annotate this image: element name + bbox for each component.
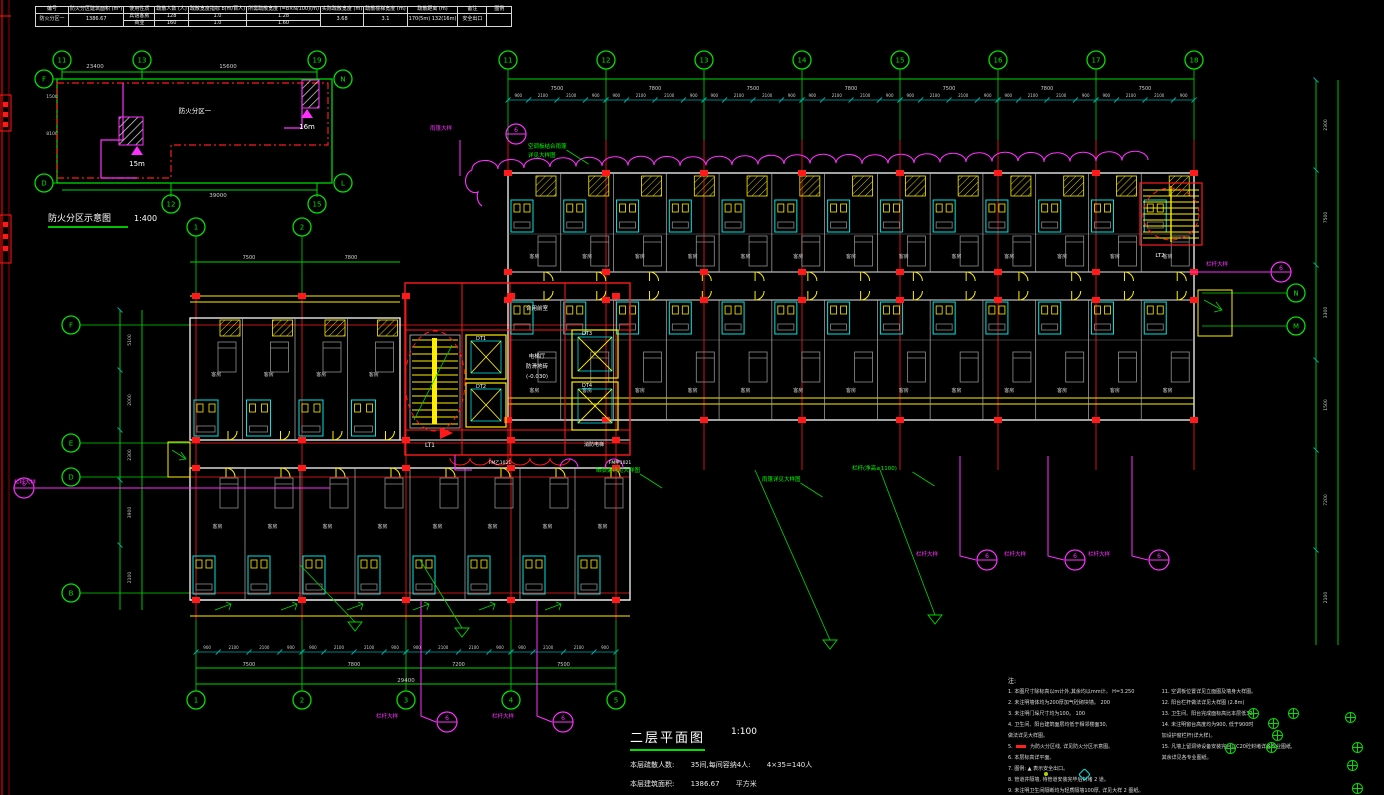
leader-line — [880, 470, 935, 615]
column-marker — [602, 297, 610, 303]
room-label: 客房 — [793, 253, 803, 260]
dim-text: 900 — [601, 645, 609, 650]
fixture — [471, 560, 477, 568]
door-arc — [391, 468, 400, 477]
dim-text: 7500 — [1139, 86, 1152, 92]
fixture — [936, 222, 952, 228]
slope-triangle — [455, 628, 469, 637]
dim-text: 2100 — [538, 93, 549, 98]
dim-text: 900 — [287, 645, 295, 650]
grid-bubble-label: 13 — [700, 57, 709, 65]
column-marker — [298, 465, 306, 471]
grid-bubble: 12 — [162, 195, 180, 213]
grid-bubble-label: F — [69, 322, 73, 330]
plan-scale: 1:100 — [731, 727, 757, 737]
laundry-hatch — [325, 320, 345, 336]
column-marker — [612, 293, 620, 299]
column-marker — [504, 417, 512, 423]
dim-text: 900 — [391, 645, 399, 650]
fixture — [831, 204, 837, 212]
bed — [696, 352, 714, 382]
column-marker — [504, 170, 512, 176]
dim-text: 5100 — [127, 334, 133, 346]
fixture — [302, 404, 308, 412]
dim-text: 7800 — [345, 255, 358, 261]
room-label: 客房 — [952, 253, 962, 260]
door-arc — [446, 468, 455, 477]
room-label: 客房 — [846, 253, 856, 260]
frame-mark — [3, 112, 8, 117]
grid-bubble: 1 — [187, 691, 205, 709]
room-label: 客房 — [487, 523, 497, 530]
column-marker — [602, 170, 610, 176]
room-label: 客房 — [597, 523, 607, 530]
fixture — [316, 560, 322, 568]
dim-text: 900 — [592, 93, 600, 98]
callout-label: 栏杆大样 — [492, 712, 515, 720]
evac-value: 4×35=140人 — [767, 761, 812, 769]
fixture — [620, 222, 636, 228]
fixture — [725, 324, 741, 330]
fixture — [1157, 306, 1163, 314]
fixture — [206, 560, 212, 568]
fixture — [196, 584, 212, 590]
room-label: 客房 — [1057, 387, 1067, 394]
laundry-hatch — [1169, 176, 1189, 196]
note-item: 做法详见大样图。 — [1008, 731, 1156, 742]
room-label: 客房 — [316, 371, 326, 378]
room-label: 客房 — [264, 371, 274, 378]
core-stairs-lifts: LT1DT1DT2DT3DT4合用前室电梯厅防滑地砖(-0.030)消防电梯FM… — [405, 183, 1202, 470]
door-arc — [544, 272, 553, 281]
detail-callout: 6栏杆大样 — [1088, 456, 1169, 570]
fixture — [989, 222, 1005, 228]
annotation-leader — [913, 472, 935, 486]
grid-bubble: B — [62, 584, 80, 602]
annotations: 空调板结合雨篷详见大样图晒衣架详见大样图雨篷详见大样图栏杆(净高≥1100) — [300, 142, 942, 649]
fixture — [883, 204, 889, 212]
laundry-hatch — [1011, 176, 1031, 196]
grid-bubble: 5 — [607, 691, 625, 709]
door-arc — [913, 272, 922, 281]
dim-text: 7500 — [551, 86, 564, 92]
fixture — [524, 204, 530, 212]
room-label: 客房 — [1163, 387, 1173, 394]
fixture — [672, 222, 688, 228]
bed — [1013, 352, 1031, 382]
main-floor-plan: 客房客房客房客房客房客房客房客房客房客房客房客房客房客房客房客房客房客房客房客房… — [168, 170, 1232, 616]
fixture — [883, 306, 889, 314]
room-label: 防滑地砖 — [526, 362, 549, 370]
column-marker — [896, 297, 904, 303]
room-label: 客房 — [582, 253, 592, 260]
bed — [1013, 236, 1031, 266]
frame-mark — [3, 102, 8, 107]
table-cell: 1.0 — [188, 13, 246, 20]
fixture — [778, 306, 784, 314]
grid-bubble: E — [62, 434, 80, 452]
fixture — [936, 306, 942, 314]
column-marker — [612, 597, 620, 603]
legend-symbol-dot — [1044, 772, 1048, 776]
column-marker — [298, 293, 306, 299]
door-arc — [386, 431, 395, 440]
laundry-hatch — [747, 176, 767, 196]
bed — [960, 236, 978, 266]
callout-number: 6 — [445, 715, 449, 722]
key-plan-scale: 1:400 — [134, 214, 157, 223]
room-label: 客房 — [1004, 253, 1014, 260]
laundry-hatch — [1116, 176, 1136, 196]
fixture — [788, 306, 794, 314]
bed — [907, 352, 925, 382]
grid-bubble-label: 14 — [798, 57, 807, 65]
door-arc — [861, 291, 870, 300]
laundry-hatch — [220, 320, 240, 336]
area-line: 本层建筑面积: 1386.67 平方米 — [630, 779, 826, 789]
escape-distance: 16m — [299, 123, 315, 131]
bed — [802, 236, 820, 266]
laundry-hatch — [536, 176, 556, 196]
fixture — [630, 204, 636, 212]
detail-callout: 6栏杆大样 — [1004, 456, 1085, 570]
room-label: 客房 — [529, 253, 539, 260]
lift-label: DT4 — [582, 383, 592, 389]
door-arc — [281, 468, 290, 477]
fixture — [1094, 324, 1110, 330]
door-arc — [228, 431, 237, 440]
fixture — [936, 204, 942, 212]
dim-text: 900 — [808, 93, 816, 98]
fixture — [1052, 306, 1058, 314]
fixture — [567, 204, 573, 212]
fixture — [416, 584, 432, 590]
table-cell: 1.28 — [247, 13, 321, 20]
fixture — [946, 204, 952, 212]
table-cell — [487, 13, 512, 27]
detail-ref-icon — [1345, 712, 1356, 723]
dim-text: 2100 — [438, 645, 449, 650]
bathroom — [299, 400, 323, 436]
grid-bubble: 11 — [499, 51, 517, 69]
table-cell: 160 — [155, 20, 189, 27]
door-code: FM乙1021 — [489, 459, 512, 466]
room-label: 电梯厅 — [529, 352, 546, 360]
dim-text: 7800 — [649, 86, 662, 92]
laundry-hatch — [694, 176, 714, 196]
fixture — [367, 404, 373, 412]
bed — [550, 478, 568, 508]
dim-text: 39000 — [209, 193, 227, 199]
fixture — [426, 560, 432, 568]
grid-bubble: D — [62, 468, 80, 486]
callout-leader — [960, 456, 976, 560]
door-arc — [1019, 272, 1028, 281]
dim-text: 2100 — [1126, 93, 1137, 98]
fixture — [250, 426, 268, 432]
bed — [1066, 236, 1084, 266]
table-header: 疏散距离 (m) — [407, 7, 458, 14]
fixture — [1042, 222, 1058, 228]
grid-bubble: L — [334, 174, 352, 192]
dim-text: 2100 — [958, 93, 969, 98]
fixture — [355, 426, 373, 432]
table-cell: 128 — [155, 13, 189, 20]
dim-text: 2100 — [930, 93, 941, 98]
room-label: 消防电梯 — [584, 441, 604, 448]
fixture — [831, 222, 847, 228]
grid-bubble-label: 3 — [404, 697, 408, 705]
fixture — [581, 560, 587, 568]
fixture — [841, 204, 847, 212]
dim-text: 900 — [496, 645, 504, 650]
laundry-hatch — [589, 176, 609, 196]
column-marker — [994, 417, 1002, 423]
callout-leader — [421, 600, 436, 722]
door-arc — [226, 468, 235, 477]
bed — [1171, 236, 1189, 266]
grid-bubble: 4 — [502, 691, 520, 709]
grid-bubble: 12 — [597, 51, 615, 69]
frame-mark — [3, 246, 8, 251]
fixture — [831, 306, 837, 314]
grid-bubble: N — [1287, 284, 1305, 302]
door-code: FM甲1021 — [609, 460, 632, 466]
grid-bubble-label: 18 — [1190, 57, 1199, 65]
dim-text: 2100 — [1154, 93, 1165, 98]
slope-arrow — [347, 602, 363, 610]
dim-text: 900 — [413, 645, 421, 650]
note-item: 加设护窗栏杆(详大样)。 — [1162, 731, 1380, 742]
fixture — [672, 306, 678, 314]
grid-bubble: 11 — [53, 51, 71, 69]
escape-triangle — [131, 146, 143, 155]
fixture — [1104, 306, 1110, 314]
side-balcony — [1198, 290, 1232, 336]
laundry-hatch — [1064, 176, 1084, 196]
dim-text: 2100 — [762, 93, 773, 98]
room-label: 客房 — [529, 387, 539, 394]
annotation-text: 详见大样图 — [528, 151, 556, 159]
column-marker — [700, 170, 708, 176]
fixture — [196, 560, 202, 568]
slope-arrow — [215, 602, 231, 610]
grid-bubble-label: 17 — [1092, 57, 1101, 65]
slope-arrow — [1204, 300, 1222, 312]
door-arc — [966, 272, 975, 281]
fire-boundary — [57, 83, 328, 178]
detail-callout: 6栏杆大样 — [916, 456, 997, 570]
dim-text: 900 — [1180, 93, 1188, 98]
room-label: 客房 — [369, 371, 379, 378]
bed — [275, 478, 293, 508]
grid-bubble: 19 — [308, 51, 326, 69]
column-marker — [896, 269, 904, 275]
detail-ref-icon — [1288, 708, 1299, 719]
dim-text: 900 — [984, 93, 992, 98]
room-label: 客房 — [899, 387, 909, 394]
zone-area: 1386.67 — [69, 13, 124, 27]
column-marker — [798, 297, 806, 303]
fixture — [314, 404, 320, 412]
column-marker — [192, 437, 200, 443]
laundry-hatch — [853, 176, 873, 196]
column-marker — [798, 170, 806, 176]
bed — [495, 478, 513, 508]
bathroom — [352, 400, 376, 436]
detail-ref-icon — [1225, 743, 1236, 754]
callout-number: 6 — [985, 553, 989, 560]
bed — [220, 478, 238, 508]
table-header: 图例 — [487, 7, 512, 14]
sheet-title-block: 二层平面图1:100 本层疏散人数: 35间,每间容纳4人: 4×35=140人… — [630, 727, 826, 789]
dim-text: 7500 — [747, 86, 760, 92]
fixture — [1042, 204, 1048, 212]
fixture — [514, 204, 520, 212]
fixture — [946, 306, 952, 314]
room-label: 客房 — [432, 523, 442, 530]
grid-bubble: M — [1287, 317, 1305, 335]
room-label: 客房 — [793, 387, 803, 394]
escape-triangle — [301, 109, 313, 118]
dim-text: 900 — [1082, 93, 1090, 98]
bed — [271, 342, 289, 372]
dim-text: 1500 — [46, 94, 58, 100]
fixture — [567, 222, 583, 228]
annotation-leader — [801, 483, 823, 497]
column-marker — [402, 465, 410, 471]
grid-bubble: F — [62, 316, 80, 334]
room-label: 客房 — [377, 523, 387, 530]
column-marker — [994, 297, 1002, 303]
table-cell: 商业 — [124, 20, 155, 27]
bed — [538, 236, 556, 266]
fixture — [567, 306, 573, 314]
table-cell: 170(5m) 132(16m) — [407, 13, 458, 27]
note-item: 3. 未注明门垛尺寸均为100。 100 — [1008, 709, 1156, 720]
dim-text: 8100 — [46, 131, 58, 137]
notes-heading: 注: — [1008, 676, 1380, 687]
column-marker — [402, 293, 410, 299]
door-arc — [808, 272, 817, 281]
annotation-text: 晒衣架详见大样图 — [596, 466, 641, 474]
plan-title: 二层平面图 — [630, 727, 705, 751]
dim-text: 2100 — [543, 645, 554, 650]
grid-bubble: 13 — [695, 51, 713, 69]
dim-text: 2000 — [127, 394, 133, 406]
area-label: 本层建筑面积: — [630, 780, 674, 788]
slope-triangle — [348, 622, 362, 631]
fixture — [735, 204, 741, 212]
grid-bubble-label: N — [1293, 290, 1298, 298]
dim-text: 900 — [710, 93, 718, 98]
revision-cloud-path — [466, 170, 482, 206]
door-arc — [1124, 272, 1133, 281]
column-marker — [896, 170, 904, 176]
fixture — [725, 204, 731, 212]
note-item: 12. 阳台栏杆做法详见大样图 (2.8m) — [1162, 698, 1380, 709]
fixture — [778, 222, 794, 228]
side-balcony — [168, 442, 190, 477]
bed — [323, 342, 341, 372]
door-arc — [861, 272, 870, 281]
table-cell: 1.0 — [188, 20, 246, 27]
laundry-hatch — [273, 320, 293, 336]
slope-triangle — [928, 615, 942, 624]
door-arc — [1124, 291, 1133, 300]
note-item: 2. 未注明墙体均为200厚加气砼砌块墙。 200 — [1008, 698, 1156, 709]
bed — [440, 478, 458, 508]
room-label: 客房 — [635, 253, 645, 260]
dim-text: 7800 — [845, 86, 858, 92]
dim-text: 2100 — [832, 93, 843, 98]
dim-text: 2100 — [636, 93, 647, 98]
callout-number: 6 — [1279, 265, 1283, 272]
fixture — [989, 324, 1005, 330]
room-label: 客房 — [1004, 387, 1014, 394]
room-label: 客房 — [740, 387, 750, 394]
grid-bubble-label: 15 — [313, 201, 322, 209]
table-header: 编号 — [36, 7, 69, 14]
dim-text: 2100 — [734, 93, 745, 98]
detail-ref-icon — [1268, 718, 1279, 729]
dim-text: 2100 — [469, 645, 480, 650]
grid-bubble-label: 5 — [614, 697, 618, 705]
table-cell: 宾馆客房 — [124, 13, 155, 20]
detail-callout: 6栏杆大样 — [14, 478, 330, 498]
laundry-hatch — [958, 176, 978, 196]
dim-text: 2100 — [860, 93, 871, 98]
fixture — [371, 560, 377, 568]
grid-bubble: 2 — [293, 218, 311, 236]
grid-bubble-label: N — [340, 76, 345, 84]
slope-arrow — [281, 602, 297, 610]
grid-bubble: F — [35, 70, 53, 88]
grid-bubble: D — [35, 174, 53, 192]
fixture — [514, 306, 520, 314]
fixture — [591, 560, 597, 568]
column-marker — [1092, 297, 1100, 303]
column-marker — [1092, 269, 1100, 275]
fixture — [999, 306, 1005, 314]
fire-marker — [440, 427, 453, 439]
door-arc — [1072, 272, 1081, 281]
dim-text: 2300 — [1323, 119, 1329, 131]
dim-text: 900 — [309, 645, 317, 650]
fixture — [1042, 306, 1048, 314]
door-arc — [755, 272, 764, 281]
fixture — [893, 204, 899, 212]
callout-label: 栏杆大样 — [1088, 550, 1111, 558]
annotation-text: 空调板结合雨篷 — [528, 142, 567, 150]
fixture — [883, 324, 899, 330]
room-label: 客房 — [688, 253, 698, 260]
bed — [855, 236, 873, 266]
grid-bubble-label: 4 — [509, 697, 514, 705]
fixture — [1094, 222, 1110, 228]
door-arc — [556, 468, 565, 477]
dim-text: 900 — [514, 93, 522, 98]
column-marker — [1092, 170, 1100, 176]
fixture — [1147, 222, 1163, 228]
fixture — [788, 204, 794, 212]
fixture — [735, 306, 741, 314]
detail-ref-icon — [1272, 730, 1283, 741]
fixture — [1094, 204, 1100, 212]
grid-bubble-label: E — [69, 440, 73, 448]
grid-bubble-label: D — [68, 474, 73, 482]
fixture — [209, 404, 215, 412]
